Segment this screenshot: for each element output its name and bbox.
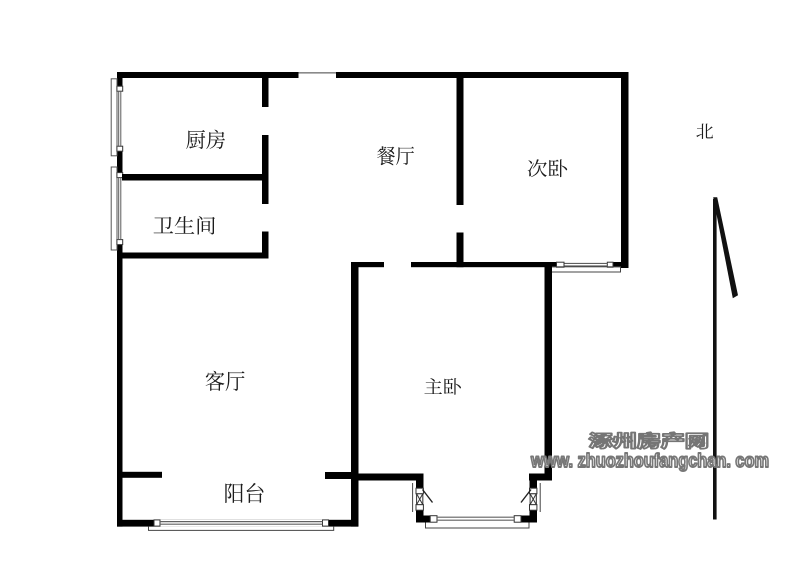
svg-text:www. zhuozhoufangchan. com: www. zhuozhoufangchan. com <box>530 450 769 472</box>
